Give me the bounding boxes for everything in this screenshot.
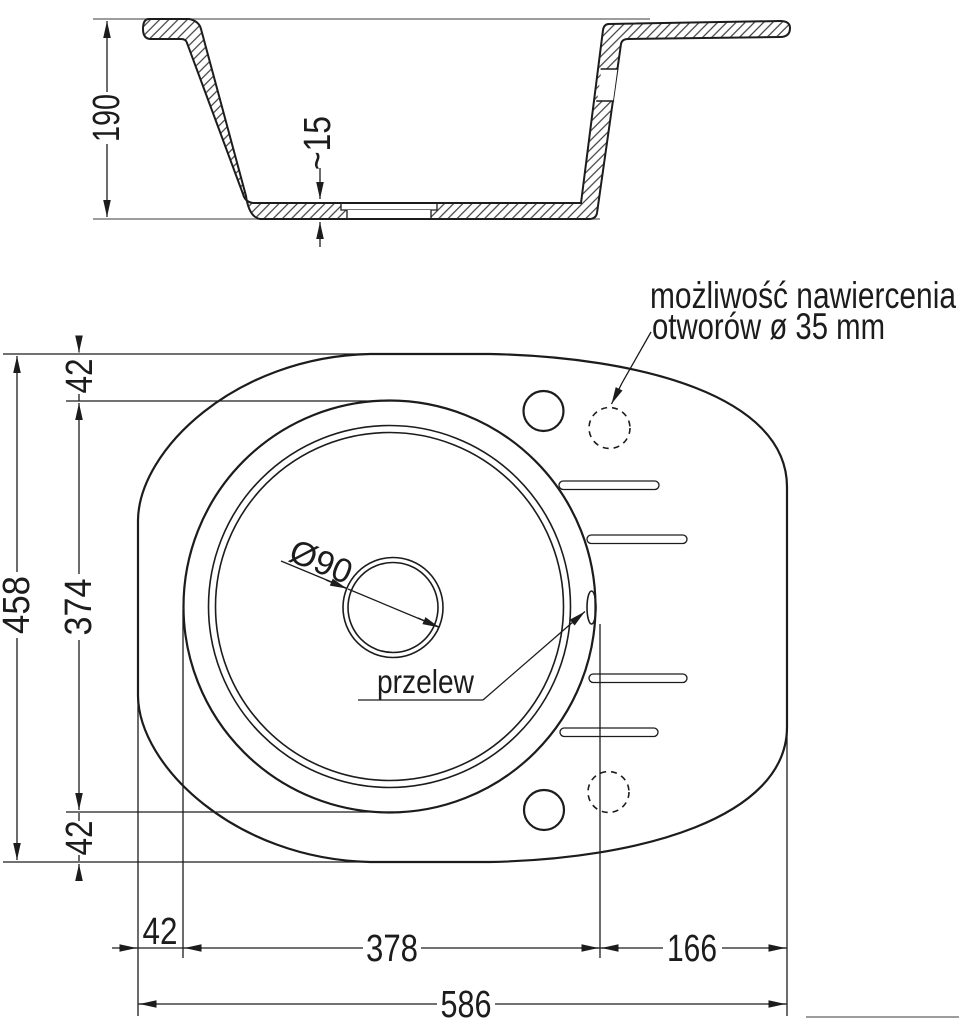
groove-1 <box>559 481 659 490</box>
groove-4 <box>560 728 658 737</box>
offset-top-label: 42 <box>59 359 101 394</box>
drainer-grooves <box>559 481 687 737</box>
note-line-2: otworów ø 35 mm <box>652 306 885 347</box>
dim-bottom-row: 42 378 166 <box>112 911 787 970</box>
drain-diameter-label: Ø90 <box>284 532 358 592</box>
drill-note: możliwość nawiercenia otworów ø 35 mm <box>612 275 957 404</box>
groove-2 <box>587 535 687 544</box>
tap-hole-top <box>524 391 564 431</box>
dim-left-offset-top: 42 <box>59 338 101 401</box>
overall-height-label: 458 <box>0 576 38 634</box>
optional-hole-top <box>589 408 630 449</box>
tap-hole-bottom <box>524 790 564 830</box>
technical-drawing-page: 190 ~15 <box>0 0 959 1023</box>
recess-label: ~15 <box>297 116 339 170</box>
dim-left-offset-bottom: 42 <box>59 813 101 878</box>
bowl-width-label: 378 <box>366 928 418 970</box>
dim-recess: ~15 <box>297 116 339 247</box>
section-view: 190 ~15 <box>86 19 790 247</box>
drainer-width-label: 166 <box>667 928 717 970</box>
dim-left-bowl: 374 <box>58 403 100 810</box>
dim-depth: 190 <box>86 21 128 217</box>
sink-outline <box>138 354 787 862</box>
dim-bottom-overall: 586 <box>138 984 787 1023</box>
overall-width-label: 586 <box>441 984 492 1023</box>
overflow-label: przelew <box>377 663 474 700</box>
sink-technical-drawing: 190 ~15 <box>0 0 959 1023</box>
bowl-height-label: 374 <box>58 579 100 636</box>
offset-left-label: 42 <box>143 911 178 953</box>
optional-hole-bottom <box>588 772 629 813</box>
depth-label: 190 <box>86 94 128 142</box>
offset-bottom-label: 42 <box>59 821 101 856</box>
groove-3 <box>589 674 687 683</box>
sink-profile-cut <box>143 19 790 219</box>
dim-drain-diameter: Ø90 <box>281 532 440 627</box>
dim-left-overall: 458 <box>0 356 38 860</box>
drain-recess <box>341 203 437 218</box>
plan-view: 458 42 374 42 42 37 <box>0 275 959 1023</box>
